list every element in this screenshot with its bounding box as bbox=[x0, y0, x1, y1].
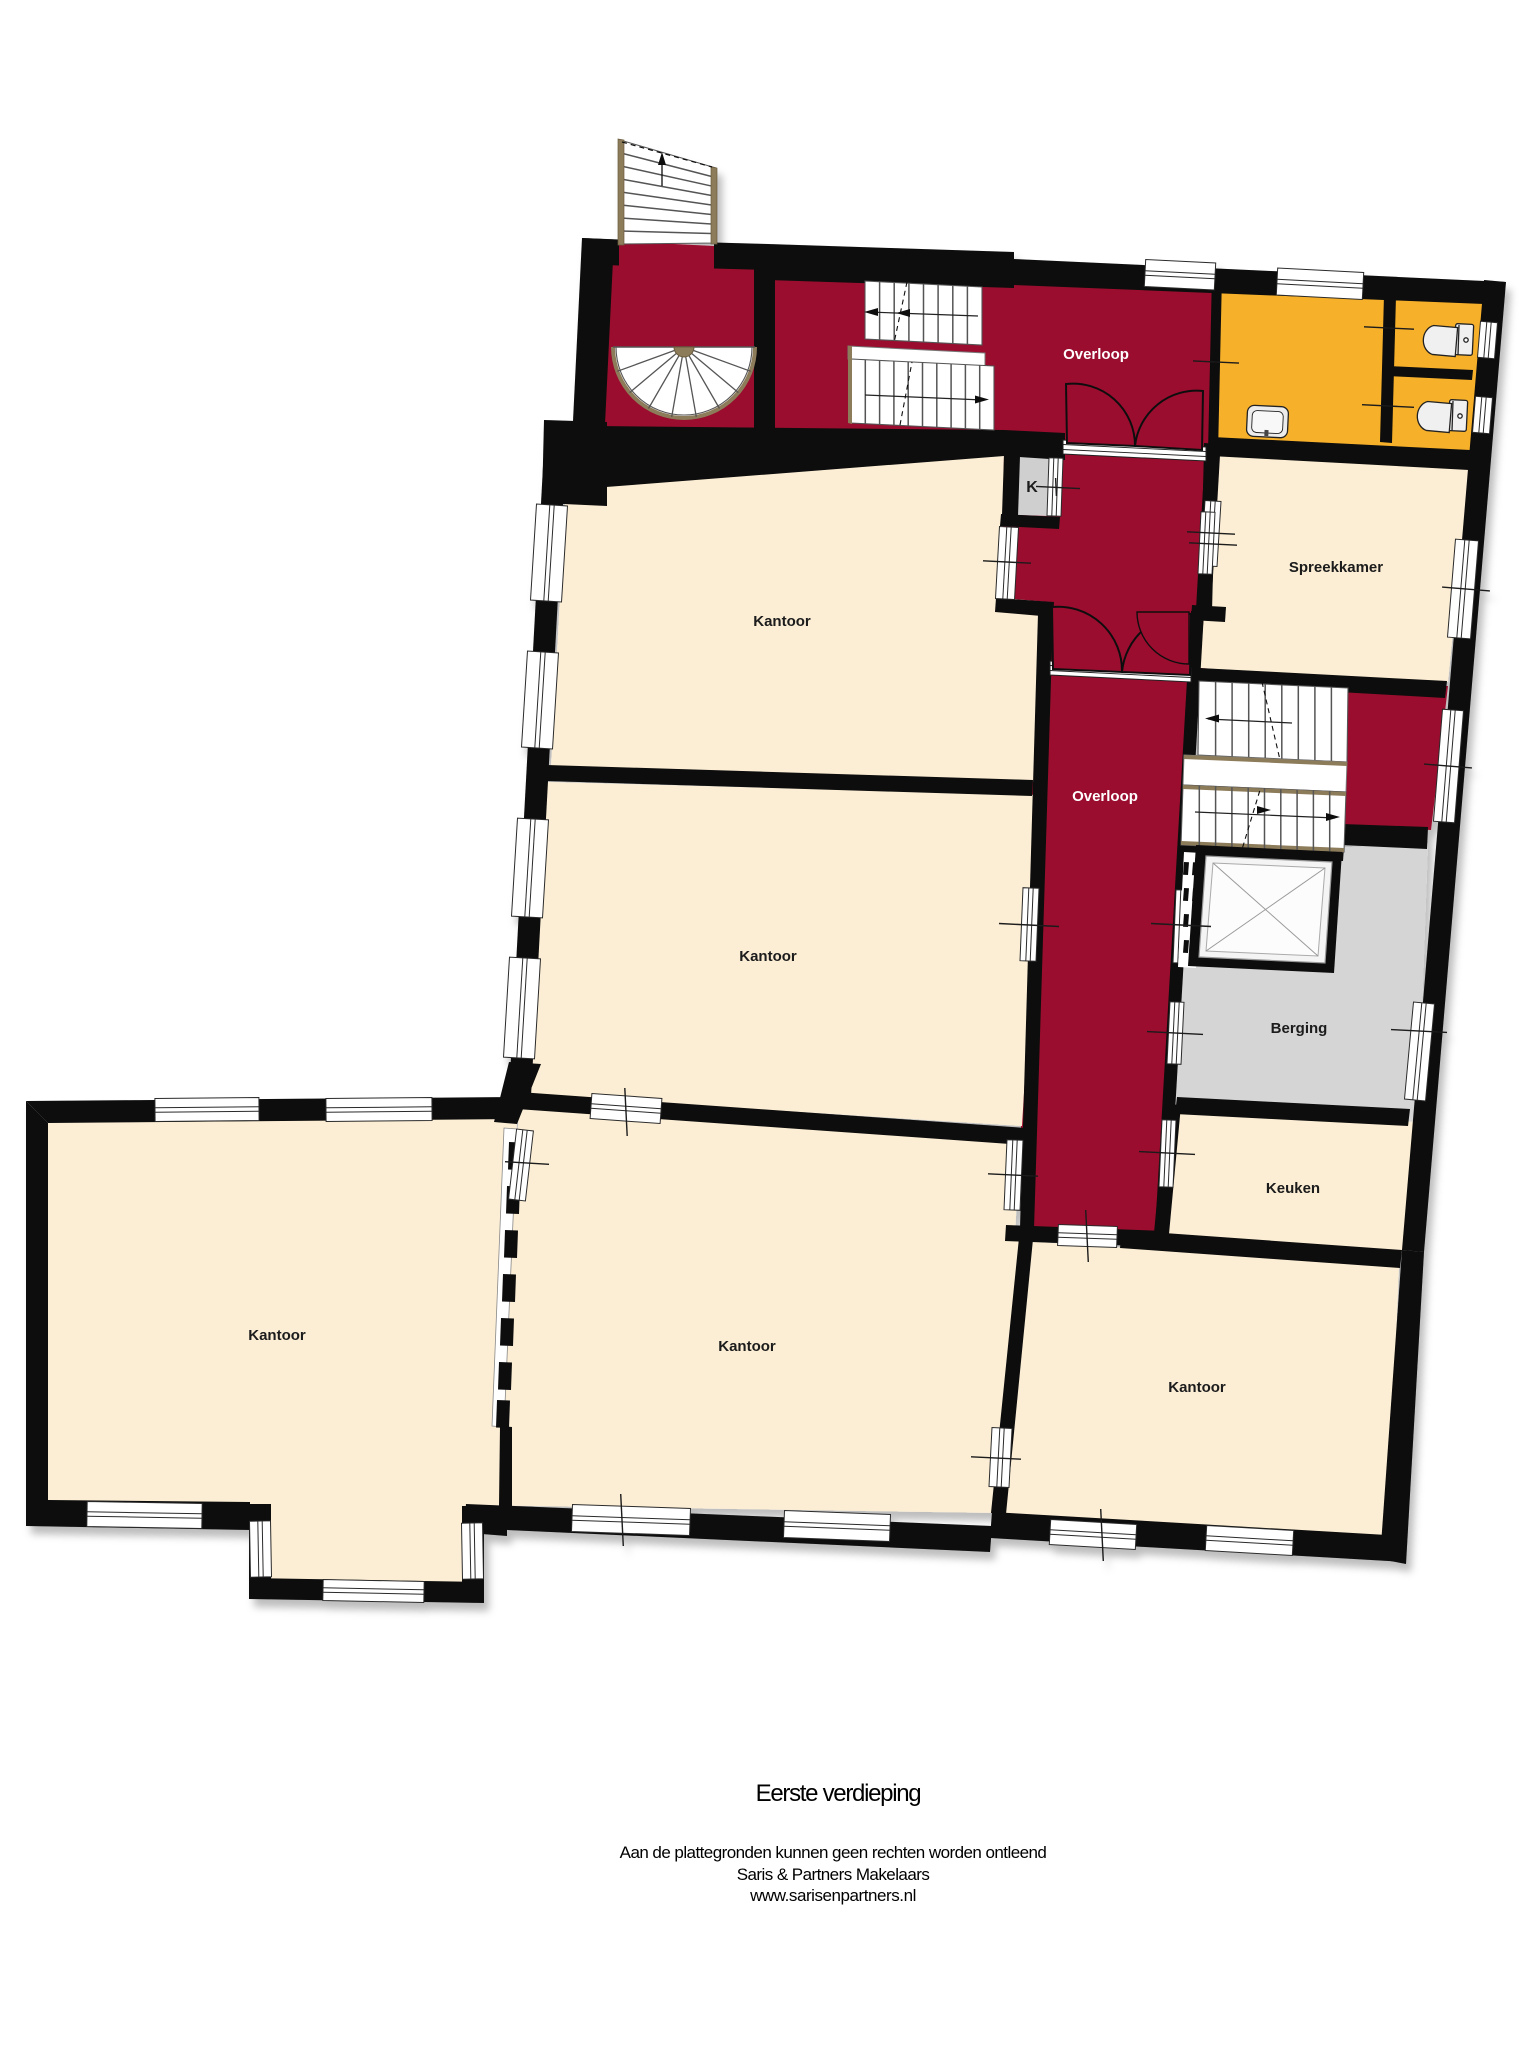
svg-text:Overloop: Overloop bbox=[1072, 788, 1138, 805]
svg-text:Kantoor: Kantoor bbox=[739, 948, 797, 965]
svg-text:Kantoor: Kantoor bbox=[753, 613, 811, 630]
svg-text:www.sarisenpartners.nl: www.sarisenpartners.nl bbox=[749, 1886, 916, 1905]
svg-text:Aan de plattegronden kunnen ge: Aan de plattegronden kunnen geen rechten… bbox=[620, 1843, 1047, 1862]
svg-text:Keuken: Keuken bbox=[1266, 1180, 1320, 1197]
svg-text:Kantoor: Kantoor bbox=[718, 1338, 776, 1355]
svg-text:Berging: Berging bbox=[1271, 1020, 1328, 1037]
svg-text:Eerste verdieping: Eerste verdieping bbox=[756, 1780, 921, 1807]
svg-text:Overloop: Overloop bbox=[1063, 346, 1129, 363]
svg-text:Kantoor: Kantoor bbox=[248, 1327, 306, 1344]
svg-text:Kantoor: Kantoor bbox=[1168, 1379, 1226, 1396]
svg-text:Saris & Partners Makelaars: Saris & Partners Makelaars bbox=[737, 1865, 930, 1884]
svg-text:K: K bbox=[1026, 479, 1038, 496]
svg-text:Spreekkamer: Spreekkamer bbox=[1289, 559, 1383, 576]
